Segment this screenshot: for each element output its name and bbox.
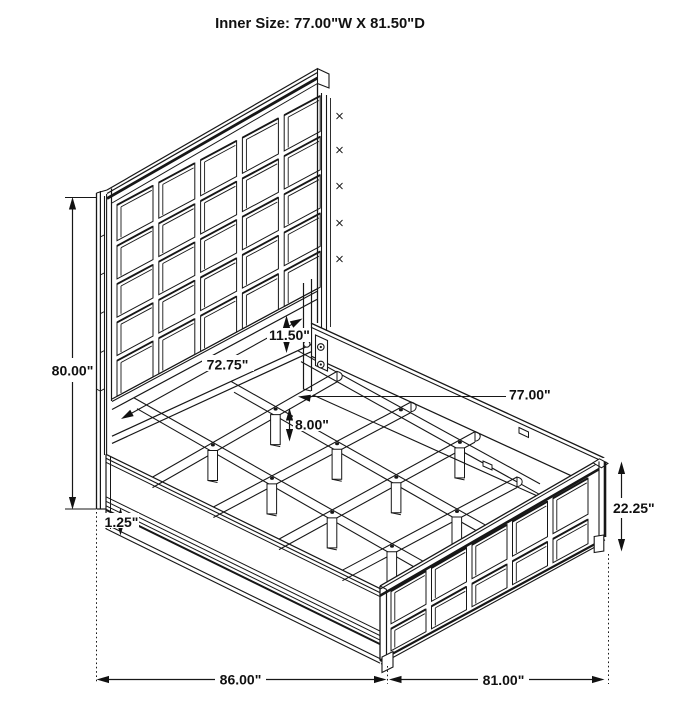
svg-text:11.50": 11.50" <box>269 327 310 343</box>
svg-text:8.00": 8.00" <box>295 417 329 433</box>
svg-text:72.75": 72.75" <box>207 357 249 373</box>
svg-text:80.00": 80.00" <box>52 363 94 379</box>
svg-text:81.00": 81.00" <box>483 672 525 688</box>
svg-text:86.00": 86.00" <box>220 672 262 688</box>
svg-text:77.00": 77.00" <box>509 387 551 403</box>
svg-text:1.25": 1.25" <box>105 514 139 530</box>
svg-text:Inner Size: 77.00"W X 81.50"D: Inner Size: 77.00"W X 81.50"D <box>215 16 425 32</box>
svg-text:22.25": 22.25" <box>613 500 655 516</box>
